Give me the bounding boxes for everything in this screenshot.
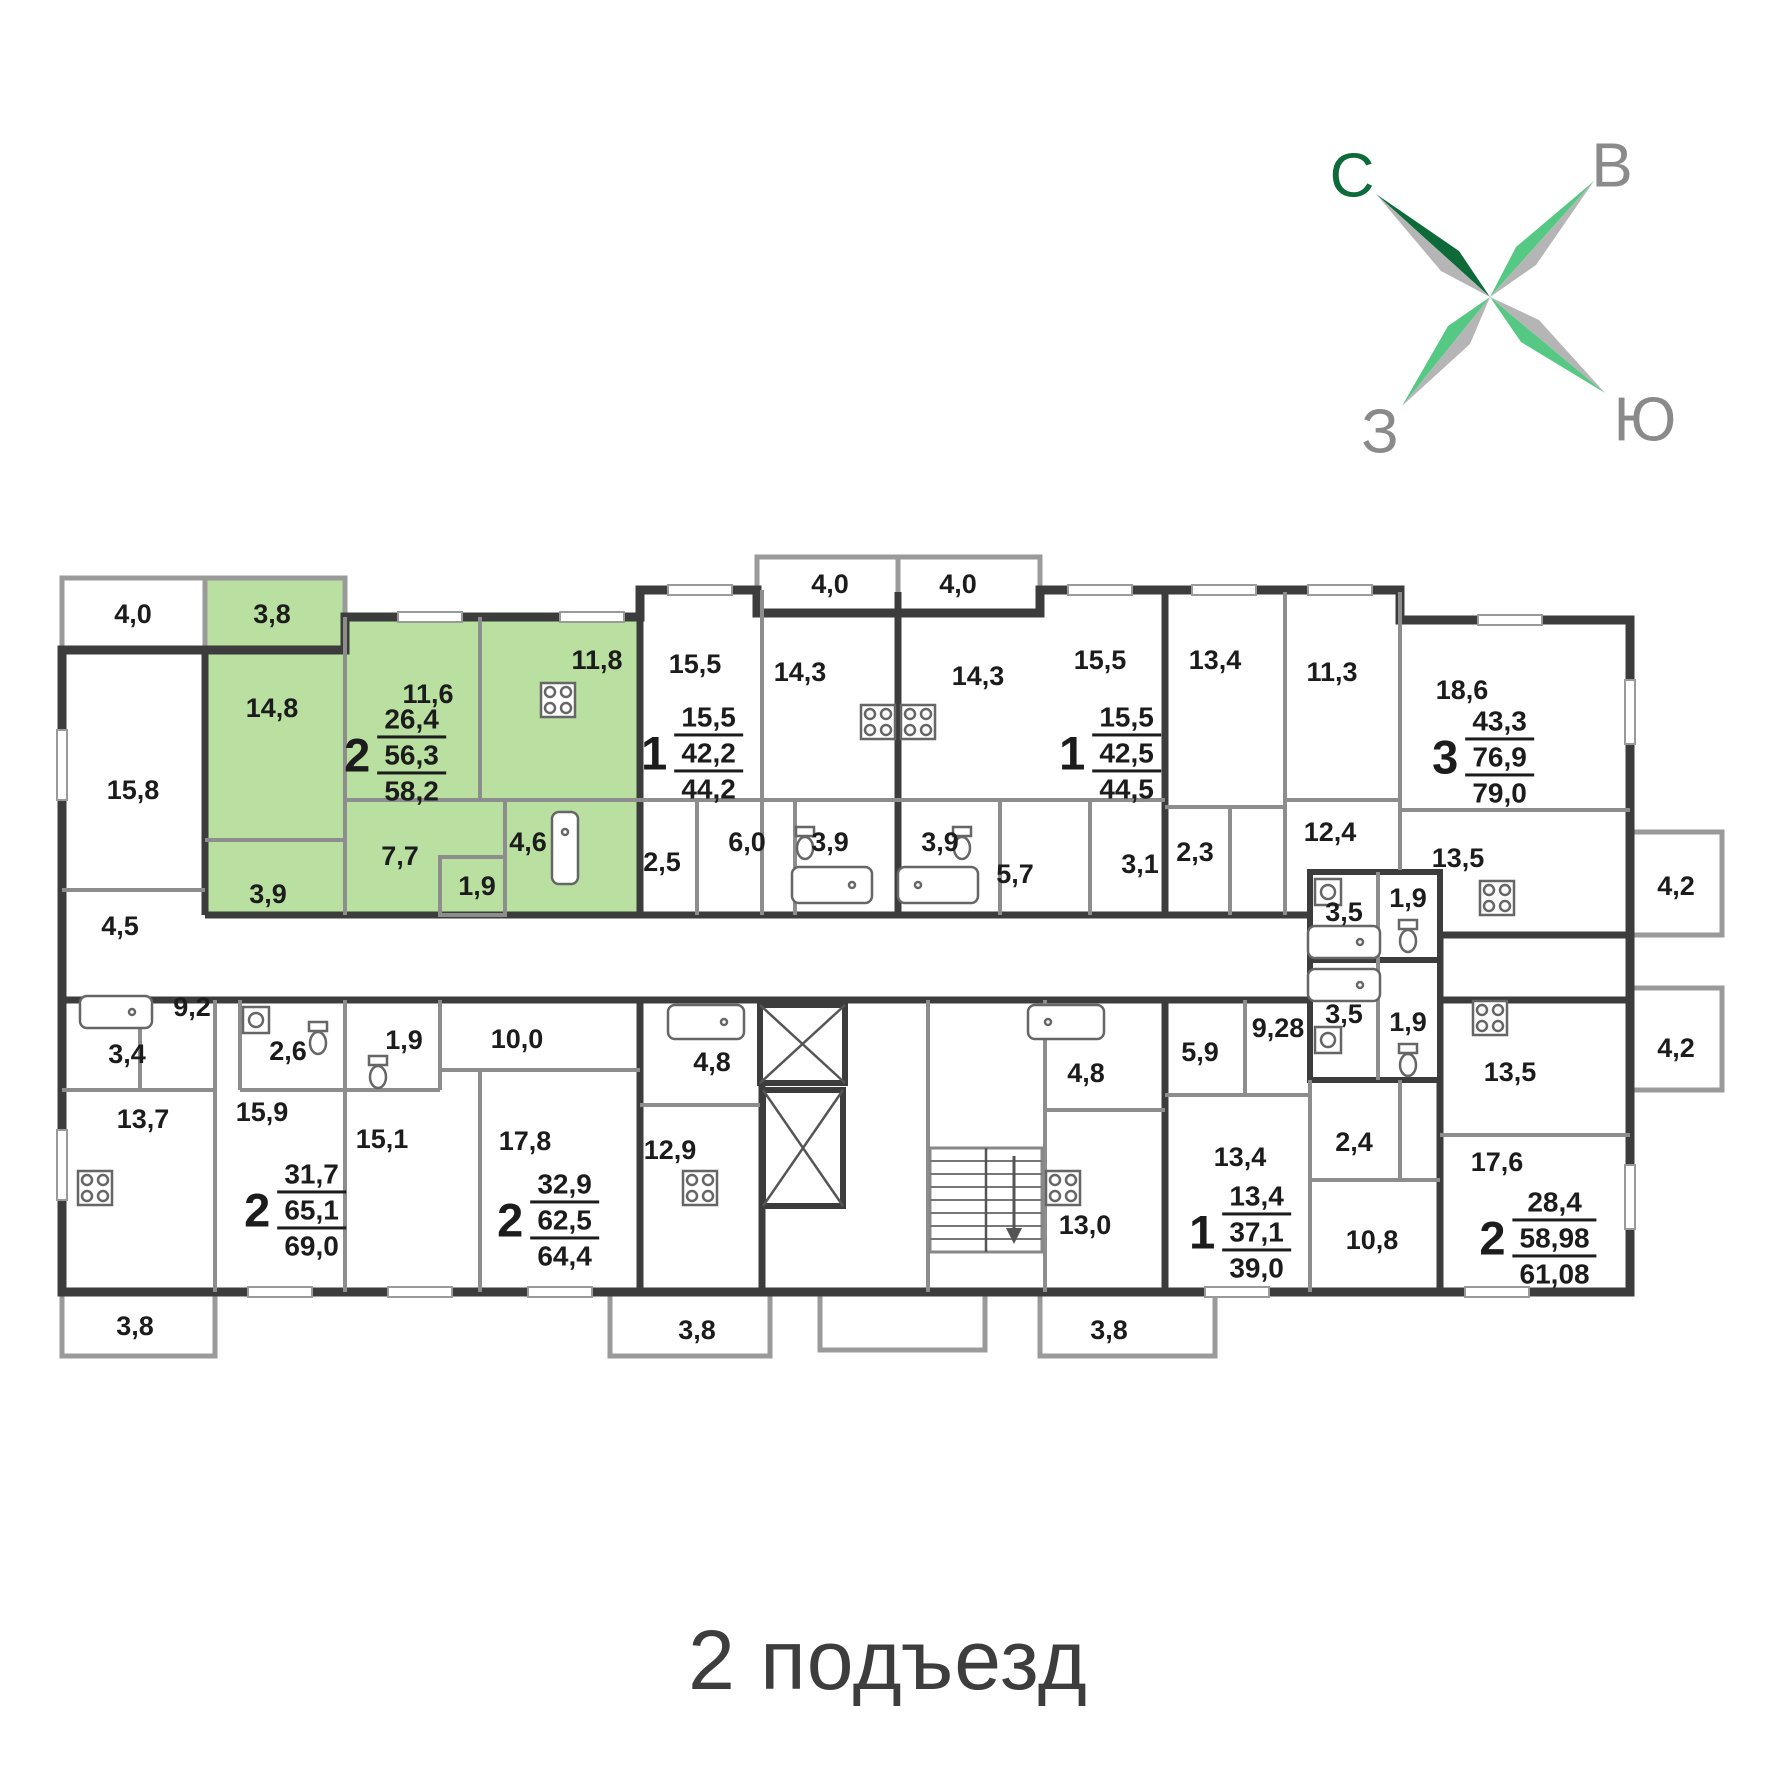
area-living: 28,4 [1513, 1185, 1597, 1221]
room-label: 13,5 [1484, 1057, 1537, 1087]
apartment-areas: 26,4 56,3 58,2 [377, 702, 446, 807]
area-total: 79,0 [1465, 777, 1534, 810]
room-label: 3,8 [116, 1311, 154, 1341]
area-total: 61,08 [1513, 1258, 1597, 1291]
area-total: 69,0 [277, 1230, 346, 1263]
apartment-rooms-count: 2 [344, 728, 370, 783]
stairs-icon [930, 1148, 1042, 1252]
area-main: 62,5 [530, 1203, 599, 1239]
room-label: 15,9 [236, 1097, 289, 1127]
area-main: 58,98 [1513, 1221, 1597, 1257]
floor-plan-svg: 4,0 3,8 15,8 14,8 11,6 11,8 7,7 3,9 1,9 … [0, 0, 1776, 1776]
apartment-label-1-right: 1 15,5 42,5 44,5 [1059, 700, 1161, 805]
room-label: 4,8 [693, 1047, 731, 1077]
compass-label-north: С [1330, 142, 1375, 211]
apartment-areas: 13,4 37,1 39,0 [1222, 1179, 1291, 1284]
room-label: 12,9 [644, 1135, 697, 1165]
apartment-label-3: 3 43,3 76,9 79,0 [1432, 704, 1534, 809]
room-label: 7,7 [381, 841, 419, 871]
room-label: 3,9 [249, 879, 287, 909]
area-main: 42,2 [674, 736, 743, 772]
room-label: 2,4 [1335, 1127, 1373, 1157]
room-label: 11,3 [1306, 657, 1357, 687]
room-label: 5,9 [1181, 1037, 1219, 1067]
apartment-rooms-count: 1 [1059, 726, 1085, 781]
room-label: 3,1 [1121, 849, 1159, 879]
room-label: 10,0 [491, 1024, 544, 1054]
room-label: 4,6 [509, 827, 547, 857]
apartment-areas: 31,7 65,1 69,0 [277, 1157, 346, 1262]
room-label: 4,2 [1657, 871, 1695, 901]
room-label: 4,8 [1067, 1058, 1105, 1088]
apartment-label-2-bottom-right: 2 28,4 58,98 61,08 [1479, 1185, 1596, 1290]
room-label: 3,9 [811, 827, 849, 857]
apartment-rooms-count: 2 [497, 1193, 523, 1248]
apartment-label-2-bottom-mid: 2 32,9 62,5 64,4 [497, 1167, 599, 1272]
room-label: 14,3 [952, 661, 1005, 691]
room-label: 13,0 [1059, 1210, 1112, 1240]
apartment-areas: 15,5 42,2 44,2 [674, 700, 743, 805]
room-label: 2,6 [269, 1036, 307, 1066]
apartment-label-1-bottom: 1 13,4 37,1 39,0 [1189, 1179, 1291, 1284]
apartment-areas: 28,4 58,98 61,08 [1513, 1185, 1597, 1290]
room-label: 1,9 [1389, 1007, 1427, 1037]
room-label: 2,5 [643, 847, 681, 877]
entrance-vestibule [820, 1292, 985, 1350]
area-main: 65,1 [277, 1193, 346, 1229]
apartment-rooms-count: 2 [244, 1183, 270, 1238]
area-living: 15,5 [1092, 700, 1161, 736]
room-label: 15,1 [356, 1124, 409, 1154]
room-label: 3,5 [1325, 897, 1363, 927]
room-label: 15,5 [1074, 645, 1127, 675]
room-label: 1,9 [385, 1025, 423, 1055]
room-label: 13,4 [1214, 1142, 1267, 1172]
area-main: 56,3 [377, 738, 446, 774]
room-label: 4,0 [811, 569, 849, 599]
apartment-rooms-count: 2 [1479, 1211, 1505, 1266]
area-living: 31,7 [277, 1157, 346, 1193]
room-label: 5,7 [996, 859, 1034, 889]
room-label: 10,8 [1346, 1225, 1399, 1255]
area-living: 43,3 [1465, 704, 1534, 740]
room-label: 2,3 [1176, 837, 1214, 867]
room-label: 13,7 [117, 1104, 170, 1134]
room-label: 4,0 [114, 599, 152, 629]
area-main: 37,1 [1222, 1215, 1291, 1251]
area-main: 42,5 [1092, 736, 1161, 772]
room-label: 15,5 [669, 649, 722, 679]
apartment-label-2-highlighted: 2 26,4 56,3 58,2 [344, 702, 446, 807]
room-label: 14,3 [774, 657, 827, 687]
room-label: 13,4 [1189, 645, 1242, 675]
compass-label-south: Ю [1614, 386, 1677, 455]
apartment-areas: 15,5 42,5 44,5 [1092, 700, 1161, 805]
room-label: 3,8 [253, 599, 291, 629]
area-living: 26,4 [377, 702, 446, 738]
apartment-rooms-count: 1 [1189, 1205, 1215, 1260]
area-main: 76,9 [1465, 740, 1534, 776]
area-total: 64,4 [530, 1240, 599, 1273]
room-label: 14,8 [246, 693, 299, 723]
room-label: 9,28 [1252, 1013, 1305, 1043]
apartment-label-2-bottom-left: 2 31,7 65,1 69,0 [244, 1157, 346, 1262]
apartment-areas: 32,9 62,5 64,4 [530, 1167, 599, 1272]
room-label: 3,8 [1090, 1315, 1128, 1345]
area-total: 44,5 [1092, 773, 1161, 806]
room-label: 17,6 [1471, 1147, 1524, 1177]
room-label: 13,5 [1432, 843, 1485, 873]
room-label: 9,2 [173, 992, 211, 1022]
floorplan-page: 4,0 3,8 15,8 14,8 11,6 11,8 7,7 3,9 1,9 … [0, 0, 1776, 1776]
apartment-rooms-count: 3 [1432, 730, 1458, 785]
room-label: 12,4 [1304, 817, 1357, 847]
area-total: 39,0 [1222, 1252, 1291, 1285]
room-label: 4,2 [1657, 1033, 1695, 1063]
room-label: 4,5 [101, 911, 139, 941]
room-label: 18,6 [1436, 675, 1489, 705]
elevator-icon [760, 1005, 845, 1206]
area-total: 58,2 [377, 775, 446, 808]
area-living: 13,4 [1222, 1179, 1291, 1215]
room-label: 3,4 [108, 1039, 146, 1069]
page-title: 2 подъезд [0, 1612, 1776, 1709]
area-total: 44,2 [674, 773, 743, 806]
compass-label-east: В [1591, 132, 1632, 201]
room-label: 1,9 [1389, 883, 1427, 913]
room-label: 1,9 [458, 871, 496, 901]
room-label: 17,8 [499, 1126, 552, 1156]
room-label: 6,0 [728, 827, 766, 857]
room-label: 15,8 [107, 775, 160, 805]
room-label: 3,8 [678, 1315, 716, 1345]
room-label: 11,8 [571, 645, 622, 675]
room-label: 3,9 [921, 827, 959, 857]
area-living: 15,5 [674, 700, 743, 736]
area-living: 32,9 [530, 1167, 599, 1203]
room-label: 4,0 [939, 569, 977, 599]
room-label: 3,5 [1325, 999, 1363, 1029]
apartment-label-1-left: 1 15,5 42,2 44,2 [641, 700, 743, 805]
apartment-rooms-count: 1 [641, 726, 667, 781]
compass-rose: С В З Ю [1330, 132, 1677, 467]
apartment-areas: 43,3 76,9 79,0 [1465, 704, 1534, 809]
compass-label-west: З [1361, 398, 1398, 467]
